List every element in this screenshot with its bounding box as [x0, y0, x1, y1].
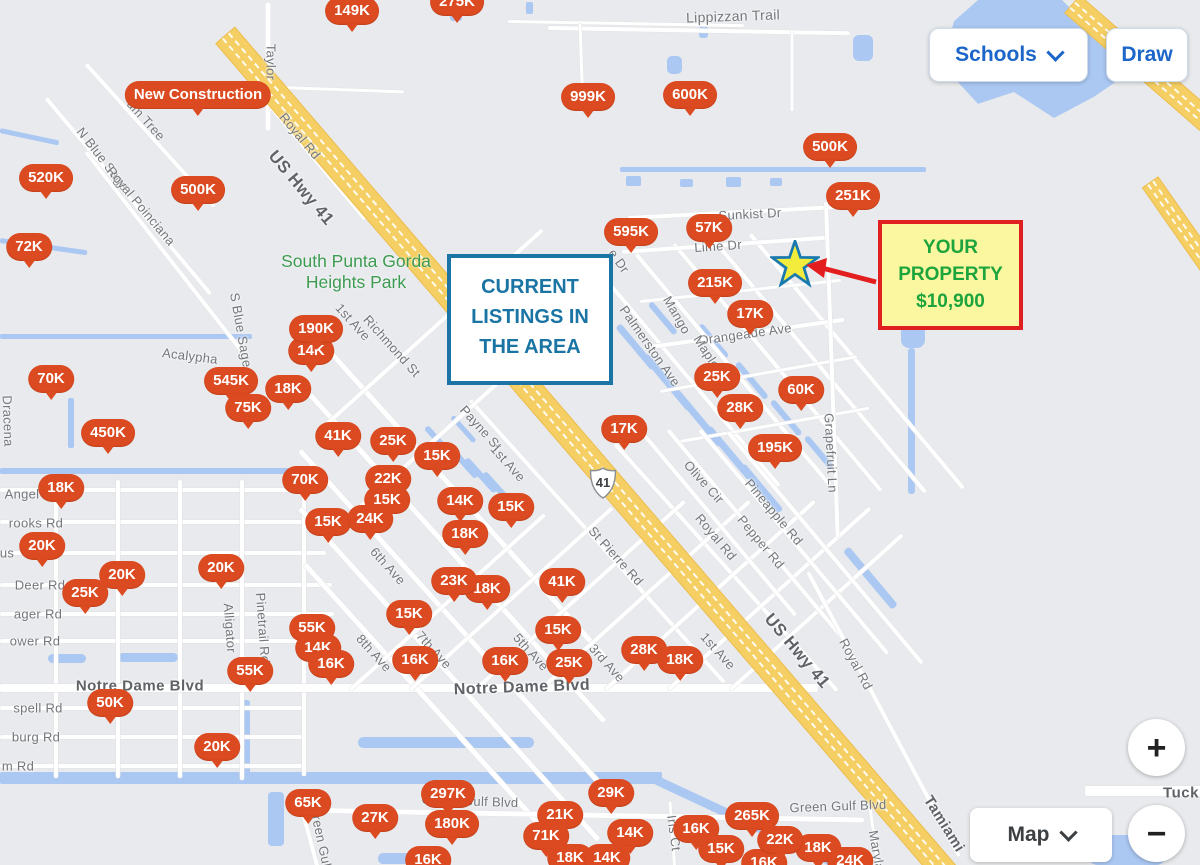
- price-pin[interactable]: 23K: [431, 567, 477, 595]
- street-label: Angel: [5, 487, 40, 502]
- road: [579, 23, 584, 85]
- price-pin[interactable]: 72K: [6, 233, 52, 261]
- price-pin[interactable]: 18K: [442, 520, 488, 548]
- price-pin[interactable]: 24K: [347, 505, 393, 533]
- water: [0, 468, 312, 474]
- map-type-button[interactable]: Map: [970, 808, 1112, 862]
- new-construction-pin[interactable]: New Construction: [125, 81, 271, 109]
- price-pin[interactable]: 22K: [757, 826, 803, 854]
- price-pin[interactable]: 15K: [488, 493, 534, 521]
- price-pin[interactable]: 29K: [588, 779, 634, 807]
- price-pin[interactable]: 25K: [694, 363, 740, 391]
- chevron-down-icon: [1046, 43, 1064, 61]
- highway: [1142, 176, 1200, 271]
- minus-icon: −: [1147, 817, 1167, 851]
- road: [178, 480, 182, 778]
- street-label: us: [0, 546, 14, 561]
- price-pin[interactable]: 20K: [194, 733, 240, 761]
- price-pin[interactable]: 251K: [826, 182, 880, 210]
- property-note-line: PROPERTY: [882, 261, 1019, 288]
- map-canvas[interactable]: South Punta Gorda Heights Park 41 CURREN…: [0, 0, 1200, 865]
- water: [680, 179, 693, 187]
- price-pin[interactable]: 16K: [405, 846, 451, 865]
- street-label: Royal Poinciana: [104, 163, 179, 248]
- price-pin[interactable]: 17K: [727, 300, 773, 328]
- price-pin[interactable]: 14K: [607, 819, 653, 847]
- water: [0, 128, 59, 145]
- price-pin[interactable]: 41K: [315, 422, 361, 450]
- price-pin[interactable]: 17K: [601, 415, 647, 443]
- draw-button-label: Draw: [1121, 43, 1172, 67]
- price-pin[interactable]: 15K: [305, 508, 351, 536]
- street-label: Lippizzan Trail: [686, 6, 781, 25]
- price-pin[interactable]: 50K: [87, 689, 133, 717]
- price-pin[interactable]: 20K: [198, 554, 244, 582]
- street-label: ager Rd: [14, 607, 62, 622]
- your-property-note: YOUR PROPERTY $10,900: [878, 220, 1023, 330]
- price-pin[interactable]: 545K: [204, 367, 258, 395]
- price-pin[interactable]: 180K: [425, 810, 479, 838]
- street-label: Royal Rd: [836, 636, 875, 692]
- chevron-down-icon: [1059, 823, 1077, 841]
- price-pin[interactable]: 297K: [421, 780, 475, 808]
- map-type-button-label: Map: [1008, 823, 1050, 847]
- listings-note-line: LISTINGS IN: [451, 302, 609, 332]
- price-pin[interactable]: 500K: [171, 176, 225, 204]
- property-note-price: $10,900: [882, 288, 1019, 315]
- price-pin[interactable]: 500K: [803, 133, 857, 161]
- street-label: Alligator: [221, 603, 239, 654]
- price-pin[interactable]: 25K: [62, 579, 108, 607]
- price-pin[interactable]: 999K: [561, 83, 615, 111]
- price-pin[interactable]: 57K: [686, 214, 732, 242]
- price-pin[interactable]: 24K: [827, 847, 873, 865]
- street-label: Dracena: [0, 395, 16, 447]
- us-route-41-shield-icon: 41: [588, 466, 618, 500]
- price-pin[interactable]: 149K: [325, 0, 379, 25]
- price-pin[interactable]: 20K: [19, 532, 65, 560]
- street-label: 1st Ave: [488, 441, 529, 484]
- street-label: spell Rd: [13, 701, 62, 716]
- water: [770, 178, 782, 186]
- water: [268, 792, 284, 846]
- price-pin[interactable]: 18K: [657, 646, 703, 674]
- water: [620, 167, 926, 172]
- water: [726, 177, 741, 187]
- price-pin[interactable]: 600K: [663, 81, 717, 109]
- price-pin[interactable]: 15K: [386, 600, 432, 628]
- price-pin[interactable]: 18K: [38, 474, 84, 502]
- price-pin[interactable]: 450K: [81, 419, 135, 447]
- price-pin[interactable]: 14K: [584, 844, 630, 865]
- price-pin[interactable]: 520K: [19, 164, 73, 192]
- street-label: Pinetrail Rd: [253, 592, 273, 664]
- street-label: burg Rd: [12, 730, 60, 745]
- price-pin[interactable]: 18K: [265, 375, 311, 403]
- water: [68, 398, 74, 448]
- street-label: Acalypha: [161, 345, 218, 367]
- road: [791, 30, 794, 112]
- zoom-out-button[interactable]: −: [1128, 805, 1185, 862]
- price-pin[interactable]: 25K: [370, 427, 416, 455]
- price-pin[interactable]: 65K: [285, 789, 331, 817]
- price-pin[interactable]: 70K: [28, 365, 74, 393]
- street-label: ower Rd: [10, 634, 61, 649]
- street-label: Olive Cir: [681, 457, 727, 506]
- price-pin[interactable]: 15K: [698, 835, 744, 863]
- water: [667, 56, 682, 74]
- street-label: rooks Rd: [9, 516, 63, 531]
- road: [320, 808, 864, 822]
- water: [626, 176, 641, 186]
- price-pin[interactable]: 25K: [546, 649, 592, 677]
- schools-button-label: Schools: [955, 43, 1037, 67]
- price-pin[interactable]: 75K: [225, 394, 271, 422]
- arrow-annotation: [800, 248, 885, 293]
- water: [0, 334, 252, 339]
- price-pin[interactable]: 215K: [688, 269, 742, 297]
- park-label: South Punta Gorda Heights Park: [281, 251, 431, 293]
- price-pin[interactable]: 27K: [352, 804, 398, 832]
- price-pin[interactable]: 275K: [430, 0, 484, 16]
- price-pin[interactable]: 60K: [778, 376, 824, 404]
- price-pin[interactable]: 55K: [227, 657, 273, 685]
- zoom-in-button[interactable]: +: [1128, 719, 1185, 776]
- current-listings-note: CURRENT LISTINGS IN THE AREA: [447, 254, 613, 385]
- water: [526, 2, 533, 14]
- street-label: Grapefruit Ln: [821, 413, 840, 493]
- price-pin[interactable]: 15K: [414, 442, 460, 470]
- price-pin[interactable]: 41K: [539, 568, 585, 596]
- price-pin[interactable]: 190K: [289, 315, 343, 343]
- price-pin[interactable]: 16K: [308, 650, 354, 678]
- street-label: Taylor: [264, 44, 279, 80]
- street-label: m Rd: [2, 759, 34, 774]
- road: [278, 86, 404, 93]
- water: [118, 653, 178, 662]
- schools-button[interactable]: Schools: [929, 28, 1088, 82]
- street-label: Tuck: [1163, 785, 1199, 802]
- plus-icon: +: [1147, 731, 1167, 765]
- listings-note-line: THE AREA: [451, 332, 609, 362]
- water: [853, 35, 873, 61]
- price-pin[interactable]: 28K: [717, 394, 763, 422]
- road: [116, 480, 120, 778]
- svg-text:41: 41: [596, 475, 610, 490]
- street-label: S Blue Sage: [227, 291, 255, 368]
- draw-button[interactable]: Draw: [1106, 28, 1188, 82]
- road: [240, 480, 244, 780]
- price-pin[interactable]: 195K: [748, 434, 802, 462]
- street-label: Deer Rd: [15, 578, 66, 593]
- price-pin[interactable]: 16K: [482, 647, 528, 675]
- road: [0, 764, 302, 768]
- price-pin[interactable]: 15K: [535, 616, 581, 644]
- listings-note-line: CURRENT: [451, 272, 609, 302]
- water: [0, 772, 662, 784]
- price-pin[interactable]: 595K: [604, 218, 658, 246]
- price-pin[interactable]: 16K: [392, 646, 438, 674]
- price-pin[interactable]: 70K: [282, 466, 328, 494]
- price-pin[interactable]: 14K: [437, 487, 483, 515]
- property-note-line: YOUR: [882, 234, 1019, 261]
